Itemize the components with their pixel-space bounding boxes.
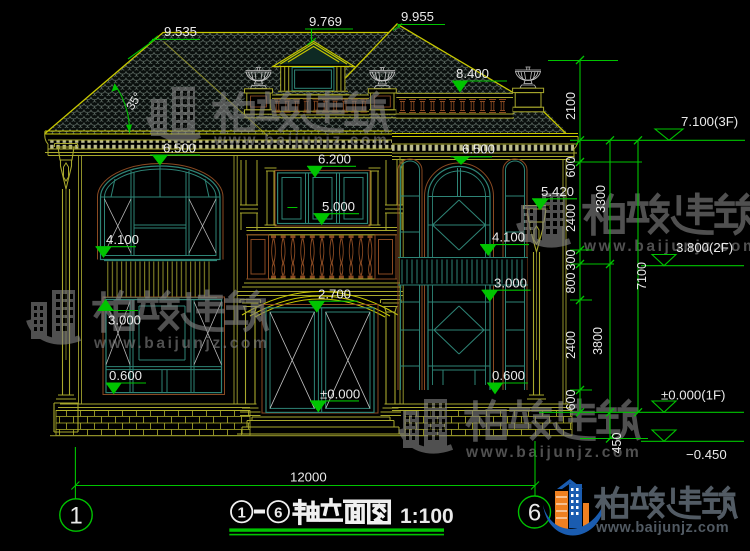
svg-text:4.100: 4.100 — [492, 230, 525, 245]
svg-text:2.700: 2.700 — [318, 287, 351, 302]
svg-text:9.769: 9.769 — [309, 14, 342, 29]
svg-text:3300: 3300 — [594, 185, 608, 213]
svg-text:6: 6 — [528, 500, 541, 527]
svg-text:1:100: 1:100 — [400, 505, 454, 528]
svg-text:1: 1 — [238, 505, 246, 522]
svg-text:www.baijunjz.com: www.baijunjz.com — [93, 335, 269, 352]
svg-text:6.500: 6.500 — [163, 141, 196, 156]
svg-text:www.baijunjz.com: www.baijunjz.com — [595, 520, 729, 536]
svg-text:±0.000(1F): ±0.000(1F) — [661, 388, 725, 403]
svg-text:2400: 2400 — [564, 204, 578, 232]
svg-text:600: 600 — [564, 390, 578, 411]
svg-text:2400: 2400 — [564, 331, 578, 359]
svg-text:12000: 12000 — [290, 470, 327, 485]
svg-text:2100: 2100 — [564, 92, 578, 120]
svg-text:5.000: 5.000 — [322, 199, 355, 214]
svg-text:9.955: 9.955 — [401, 9, 434, 24]
svg-text:6.500: 6.500 — [462, 142, 495, 157]
svg-text:8.400: 8.400 — [456, 66, 489, 81]
svg-text:4.100: 4.100 — [106, 232, 139, 247]
svg-text:450: 450 — [610, 433, 624, 454]
svg-text:1: 1 — [69, 503, 82, 530]
svg-text:9.535: 9.535 — [164, 24, 197, 39]
svg-text:300: 300 — [564, 250, 578, 271]
svg-text:3.800(2F): 3.800(2F) — [676, 240, 733, 255]
svg-text:3.000: 3.000 — [494, 276, 527, 291]
svg-text:3.000: 3.000 — [108, 313, 141, 328]
svg-text:800: 800 — [564, 273, 578, 294]
svg-text:6: 6 — [274, 505, 282, 522]
svg-text:−0.450: −0.450 — [686, 447, 727, 462]
svg-text:0.600: 0.600 — [109, 368, 142, 383]
svg-text:www.baijunjz.com: www.baijunjz.com — [213, 132, 389, 149]
svg-text:±0.000: ±0.000 — [320, 387, 360, 402]
svg-text:600: 600 — [564, 157, 578, 178]
svg-text:0.600: 0.600 — [492, 368, 525, 383]
svg-text:6.200: 6.200 — [318, 152, 351, 167]
svg-text:7.100(3F): 7.100(3F) — [681, 114, 738, 129]
svg-text:5.420: 5.420 — [541, 184, 574, 199]
svg-text:3800: 3800 — [591, 327, 605, 355]
svg-text:7100: 7100 — [635, 262, 649, 290]
